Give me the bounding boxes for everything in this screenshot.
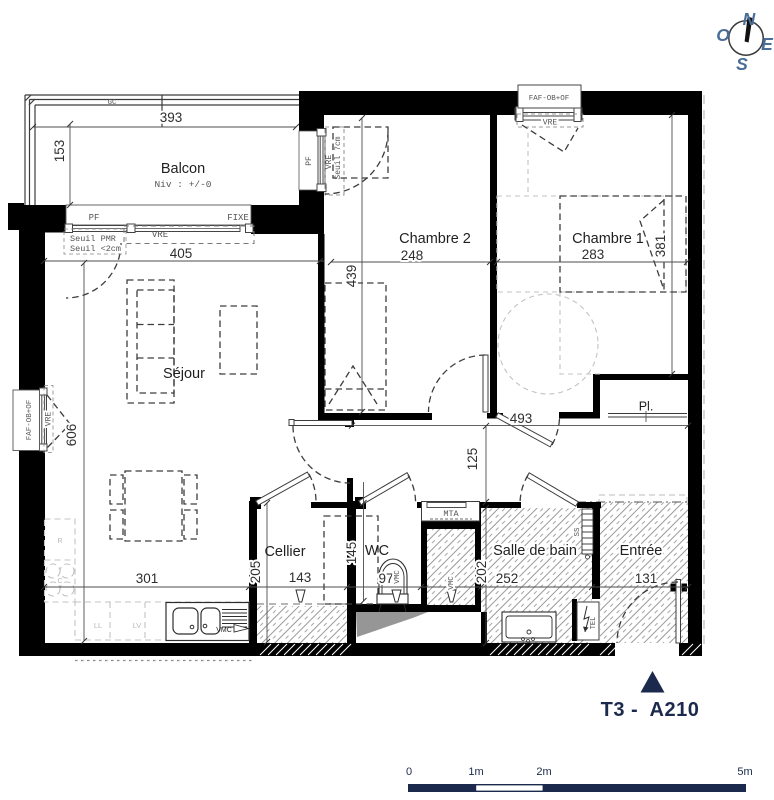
svg-text:N: N <box>743 9 756 29</box>
svg-text:381: 381 <box>653 235 668 258</box>
svg-text:Chambre 2: Chambre 2 <box>399 231 471 247</box>
svg-text:145: 145 <box>344 542 359 565</box>
svg-text:Séjour: Séjour <box>163 366 205 382</box>
svg-text:393: 393 <box>160 110 183 125</box>
svg-text:O: O <box>716 25 730 45</box>
svg-text:VRE: VRE <box>45 412 54 427</box>
svg-text:Balcon: Balcon <box>161 161 205 177</box>
svg-text:MTA: MTA <box>443 509 459 519</box>
svg-text:R: R <box>57 538 62 545</box>
svg-text:GC: GC <box>107 99 117 107</box>
svg-text:202: 202 <box>474 561 489 584</box>
svg-text:125: 125 <box>465 448 480 471</box>
svg-text:Salle de bain: Salle de bain <box>493 543 577 559</box>
svg-text:VMC: VMC <box>448 576 456 590</box>
svg-text:97: 97 <box>378 571 393 586</box>
svg-text:5m: 5m <box>737 766 752 778</box>
svg-text:VRE: VRE <box>543 119 558 128</box>
svg-text:405: 405 <box>170 246 193 261</box>
svg-text:606: 606 <box>64 424 79 447</box>
svg-text:Seuil <2cm: Seuil <2cm <box>70 244 121 254</box>
svg-text:493: 493 <box>510 411 533 426</box>
svg-text:WC: WC <box>365 543 389 559</box>
svg-text:E: E <box>761 34 774 54</box>
svg-text:FIXE: FIXE <box>227 213 249 223</box>
svg-text:Seuil PMR: Seuil PMR <box>70 234 116 244</box>
svg-text:VRE: VRE <box>325 155 334 170</box>
svg-text:PF: PF <box>89 213 100 223</box>
svg-text:205: 205 <box>248 561 263 584</box>
svg-text:VRE: VRE <box>152 230 168 240</box>
svg-text:FAF-OB+OF: FAF-OB+OF <box>529 95 570 103</box>
svg-text:VMC: VMC <box>394 570 402 584</box>
svg-text:143: 143 <box>289 570 312 585</box>
svg-text:248: 248 <box>401 248 424 263</box>
svg-text:Niv : +/-0: Niv : +/-0 <box>154 179 211 190</box>
svg-text:153: 153 <box>52 140 67 163</box>
svg-text:T3 - A210: T3 - A210 <box>601 699 700 721</box>
svg-text:VMC: VMC <box>216 627 232 634</box>
svg-text:Entrée: Entrée <box>620 543 663 559</box>
svg-text:283: 283 <box>582 247 605 262</box>
svg-text:SS: SS <box>574 527 582 537</box>
svg-text:S: S <box>736 54 748 74</box>
svg-text:252: 252 <box>496 571 519 586</box>
svg-text:LL: LL <box>94 621 102 630</box>
svg-text:301: 301 <box>136 571 159 586</box>
svg-text:131: 131 <box>635 571 658 586</box>
svg-text:439: 439 <box>344 265 359 288</box>
svg-text:LV: LV <box>133 621 142 630</box>
svg-text:FAF-OB+OF: FAF-OB+OF <box>26 400 34 441</box>
svg-text:2m: 2m <box>536 766 551 778</box>
svg-text:C: C <box>57 578 62 585</box>
svg-text:PF: PF <box>305 156 314 166</box>
svg-text:Chambre 1: Chambre 1 <box>572 231 644 247</box>
svg-text:Cellier: Cellier <box>264 544 305 560</box>
svg-text:TEL: TEL <box>590 617 598 630</box>
svg-text:1m: 1m <box>468 766 483 778</box>
svg-text:0: 0 <box>406 766 412 778</box>
svg-text:Seuil 7cm: Seuil 7cm <box>334 136 343 179</box>
